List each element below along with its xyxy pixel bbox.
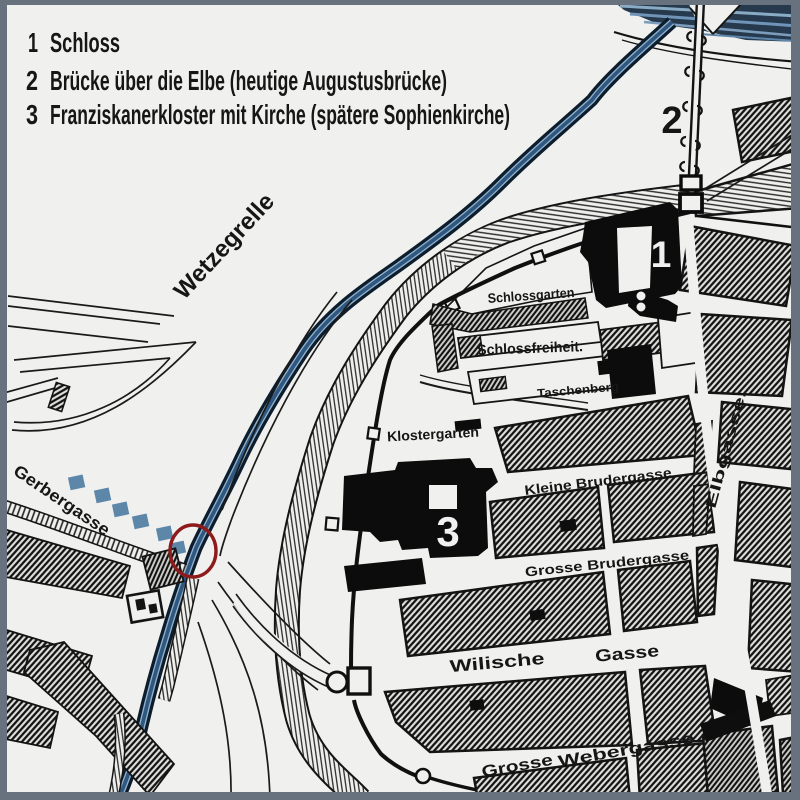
- svg-text:2: 2: [661, 100, 682, 142]
- svg-text:Franziskanerkloster mit Kirche: Franziskanerkloster mit Kirche (spätere …: [50, 99, 510, 130]
- svg-text:Brücke über die Elbe (heutige: Brücke über die Elbe (heutige Augustusbr…: [50, 65, 447, 96]
- svg-text:3: 3: [26, 99, 38, 130]
- svg-text:1: 1: [28, 27, 38, 58]
- svg-text:2: 2: [26, 65, 38, 96]
- svg-text:1: 1: [651, 234, 672, 275]
- svg-text:Schloss: Schloss: [50, 27, 120, 58]
- svg-text:3: 3: [436, 508, 459, 555]
